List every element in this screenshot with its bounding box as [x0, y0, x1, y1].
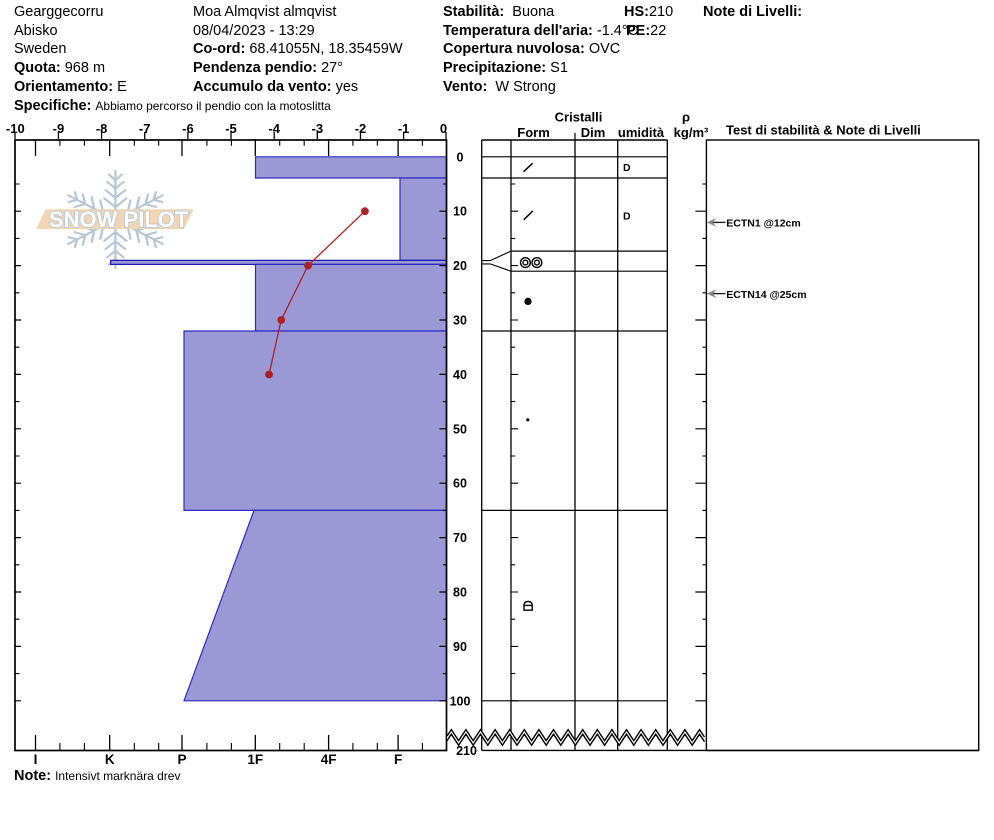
- svg-text:0: 0: [457, 150, 464, 164]
- svg-text:90: 90: [453, 640, 467, 654]
- svg-text:1F: 1F: [247, 752, 263, 767]
- svg-text:20: 20: [453, 259, 467, 273]
- svg-text:K: K: [105, 752, 115, 767]
- svg-text:kg/m³: kg/m³: [674, 125, 709, 140]
- svg-text:D: D: [623, 211, 631, 223]
- svg-text:10: 10: [453, 205, 467, 219]
- svg-text:ρ: ρ: [682, 110, 690, 125]
- svg-text:Form: Form: [517, 125, 550, 140]
- svg-text:30: 30: [453, 314, 467, 328]
- svg-text:100: 100: [450, 694, 471, 708]
- svg-text:4F: 4F: [321, 752, 337, 767]
- svg-text:50: 50: [453, 422, 467, 436]
- svg-text:P: P: [177, 752, 186, 767]
- svg-text:40: 40: [453, 368, 467, 382]
- svg-text:SNOW PILOT: SNOW PILOT: [49, 207, 189, 232]
- svg-text:Dim: Dim: [581, 125, 606, 140]
- svg-text:210: 210: [456, 744, 477, 758]
- svg-text:I: I: [34, 752, 38, 767]
- svg-text:ECTN14 @25cm: ECTN14 @25cm: [726, 289, 806, 301]
- svg-text:80: 80: [453, 586, 467, 600]
- svg-text:D: D: [623, 162, 631, 174]
- svg-text:Cristalli: Cristalli: [555, 110, 603, 125]
- svg-text:ECTN1 @12cm: ECTN1 @12cm: [726, 218, 800, 230]
- svg-text:umidità: umidità: [618, 125, 665, 140]
- svg-text:Test di stabilità & Note di Li: Test di stabilità & Note di Livelli: [726, 123, 921, 138]
- svg-text:F: F: [394, 752, 402, 767]
- svg-text:60: 60: [453, 477, 467, 491]
- svg-text:70: 70: [453, 531, 467, 545]
